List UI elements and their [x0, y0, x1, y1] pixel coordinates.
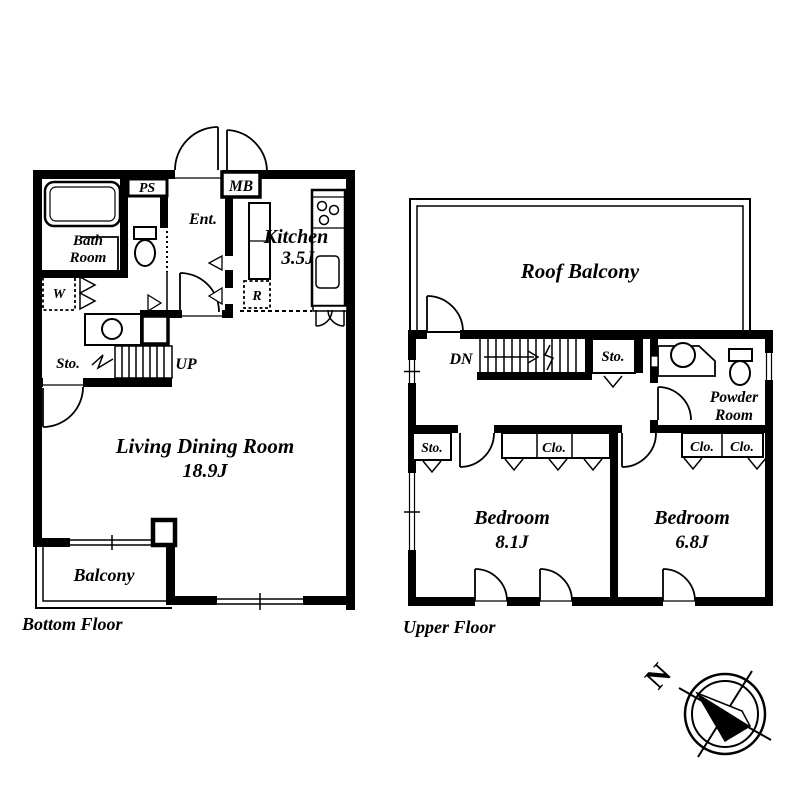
bath-room-label: Room [69, 250, 107, 266]
pipe-space-label: PS [139, 181, 156, 196]
wall-segment [408, 597, 475, 606]
folding-door-mark [748, 458, 766, 469]
door-arc [540, 569, 572, 601]
toilet-bowl [730, 361, 750, 385]
door-arc [475, 569, 507, 601]
living-dining-label: Living Dining Room [115, 434, 295, 458]
wall-segment [610, 433, 618, 606]
storage-label: Sto. [56, 356, 80, 372]
door-arc [427, 296, 463, 332]
living-size-label: 18.9J [183, 460, 229, 482]
bedroom-south-doors [475, 569, 695, 601]
stair-landing [142, 316, 168, 344]
bath-room-label: Bath [72, 233, 103, 249]
wall-segment [408, 425, 458, 433]
wall-segment [635, 339, 643, 373]
stairs-down-label: DN [448, 351, 474, 368]
bedroom1-size-label: 8.1J [495, 532, 529, 553]
bottom-floor-plan: Bath Room PS MB Ent. Kitchen 3.5J W R St… [21, 127, 355, 634]
bifold-door [80, 277, 95, 293]
kitchen-label: Kitchen [263, 226, 328, 248]
sink-basin [102, 319, 122, 339]
storage-bedroom-label: Sto. [421, 440, 442, 455]
roof-balcony-label: Roof Balcony [520, 259, 640, 283]
folding-door-mark [684, 458, 702, 469]
closet-label: Clo. [690, 440, 714, 455]
door-wedge [148, 295, 161, 311]
bathtub [45, 182, 120, 226]
wall-segment [303, 596, 355, 605]
folding-door-mark [549, 459, 567, 470]
wall-segment [507, 597, 540, 606]
wall-segment [346, 170, 355, 610]
folding-door-mark [604, 376, 622, 387]
wall-segment [477, 372, 589, 380]
toilet-tank [134, 227, 156, 239]
wall-segment [222, 310, 233, 318]
folding-door-mark [423, 461, 441, 472]
bedroom2-size-label: 6.8J [675, 532, 709, 553]
wall-segment [408, 330, 416, 360]
window-bedroom1-west [404, 473, 420, 550]
upper-floor-plan: Roof Balcony DN Sto. Powder Room Sto. Cl… [403, 199, 773, 637]
window-living-south [217, 593, 303, 610]
washbasin-icon-1f [85, 314, 141, 345]
floor-plan-image: Bath Room PS MB Ent. Kitchen 3.5J W R St… [0, 0, 800, 800]
toilet-bowl [135, 240, 155, 266]
kitchen-size-label: 3.5J [280, 248, 315, 269]
wall-segment [650, 420, 658, 433]
powder-room-label: Powder [710, 389, 759, 406]
upper-floor-title: Upper Floor [403, 617, 497, 637]
wall-segment [656, 425, 773, 433]
door-arc [175, 127, 218, 170]
storage-pointer [92, 355, 113, 368]
wall-segment [33, 170, 42, 547]
bifold-door [80, 293, 95, 309]
bottom-floor-title: Bottom Floor [21, 614, 124, 634]
bedroom2-label: Bedroom [653, 507, 730, 529]
door-arc [663, 569, 695, 601]
folding-door-mark [584, 459, 602, 470]
storage-hall-label: Sto. [602, 349, 625, 365]
door-arc [460, 433, 494, 467]
door-arc [328, 310, 344, 326]
stairs-down [480, 339, 576, 372]
wall-segment [33, 378, 43, 387]
powder-room-label: Room [714, 407, 753, 424]
closet-label: Clo. [730, 440, 754, 455]
wall-segment [765, 330, 773, 353]
wall-segment [160, 196, 168, 228]
sink-basin [671, 343, 695, 367]
wall-segment [166, 538, 175, 605]
entrance-label: Ent. [188, 211, 217, 228]
door-wedge [209, 256, 222, 270]
washer-label: W [53, 287, 67, 302]
wall-segment [225, 196, 233, 256]
wall-segment [765, 380, 773, 606]
wall-segment [460, 330, 773, 339]
folding-door-mark [505, 459, 523, 470]
north-label: N [639, 657, 678, 695]
wall-segment [494, 425, 622, 433]
wall-segment [166, 596, 217, 605]
door-arc [658, 387, 691, 420]
cabinet-door-header [313, 306, 347, 311]
entrance-door-arcs [175, 127, 267, 172]
meter-box-label: MB [228, 178, 253, 195]
door-wedge [209, 288, 222, 304]
bedroom1-label: Bedroom [473, 507, 550, 529]
bathtub-inner [50, 187, 115, 221]
wall-segment [585, 339, 592, 380]
stairs-up-label: UP [175, 356, 197, 373]
compass-rose: N [639, 657, 771, 757]
wall-segment [83, 378, 172, 387]
wall-segment [33, 538, 70, 547]
wall-segment [225, 270, 233, 288]
toilet-icon-1f [134, 227, 156, 266]
floor-plan-page: Bath Room PS MB Ent. Kitchen 3.5J W R St… [0, 0, 800, 800]
wall-shelf [651, 356, 658, 367]
wall-segment [695, 597, 773, 606]
door-arc [622, 433, 656, 467]
door-arc [180, 273, 219, 312]
door-arc [227, 130, 267, 172]
balcony-label: Balcony [73, 565, 136, 585]
fridge-label: R [251, 289, 261, 304]
toilet-tank [729, 349, 752, 361]
door-arc [43, 387, 83, 427]
window-hall-west [404, 360, 420, 383]
closet-label: Clo. [542, 441, 566, 456]
window-powder-east [767, 353, 772, 380]
window-living-balcony [70, 535, 153, 550]
balcony-column [153, 520, 175, 545]
